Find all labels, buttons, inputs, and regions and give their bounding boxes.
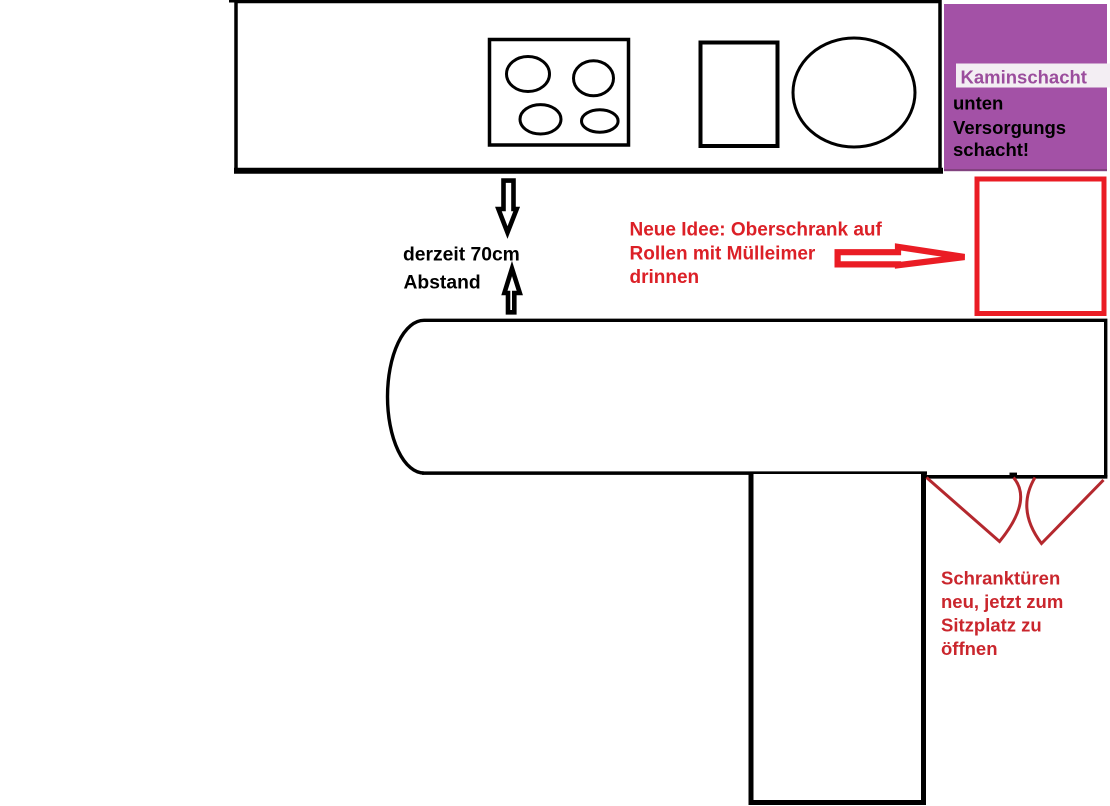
svg-text:neu, jetzt zum: neu, jetzt zum (941, 591, 1063, 612)
svg-text:Kaminschacht: Kaminschacht (961, 67, 1087, 88)
svg-text:Sitzplatz zu: Sitzplatz zu (941, 615, 1042, 636)
svg-text:Abstand: Abstand (404, 272, 481, 293)
svg-text:schacht!: schacht! (953, 139, 1029, 160)
svg-text:unten: unten (953, 93, 1003, 114)
svg-text:Neue Idee: Oberschrank auf: Neue Idee: Oberschrank auf (630, 219, 883, 240)
svg-text:öffnen: öffnen (941, 638, 998, 659)
svg-text:Schranktüren: Schranktüren (941, 568, 1060, 589)
svg-text:Rollen mit Mülleimer: Rollen mit Mülleimer (630, 244, 816, 265)
svg-text:Versorgungs: Versorgungs (953, 117, 1066, 138)
svg-text:derzeit 70cm: derzeit 70cm (403, 245, 520, 266)
svg-text:drinnen: drinnen (630, 267, 700, 288)
